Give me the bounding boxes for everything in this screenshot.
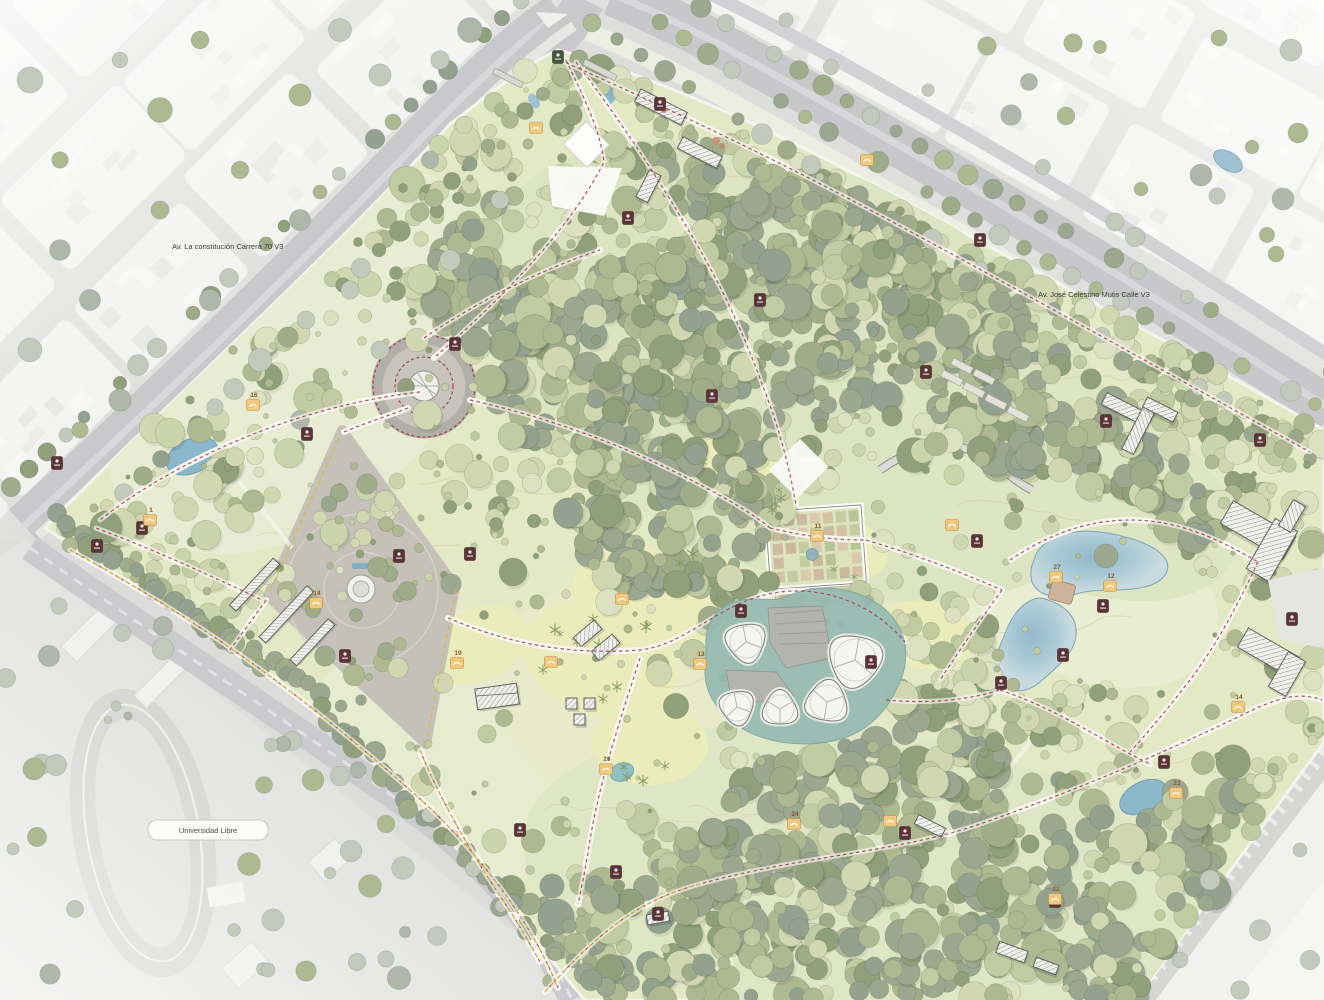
svg-text:21: 21 [1052, 886, 1060, 893]
svg-text:Av. José Celestino Mutis Calle: Av. José Celestino Mutis Calle V3 [1038, 290, 1150, 299]
svg-text:16: 16 [250, 392, 258, 399]
svg-text:27: 27 [1053, 564, 1061, 571]
svg-text:14: 14 [313, 590, 321, 597]
svg-text:Av. La constitución Carrera 70: Av. La constitución Carrera 70 V3 [172, 242, 283, 251]
svg-text:19: 19 [454, 650, 462, 657]
svg-text:12: 12 [1107, 573, 1115, 580]
svg-text:11: 11 [815, 523, 822, 530]
svg-text:Universidad Libre: Universidad Libre [179, 826, 237, 835]
svg-text:24: 24 [791, 811, 799, 818]
svg-text:14: 14 [1235, 694, 1243, 701]
svg-text:1: 1 [149, 507, 153, 514]
svg-text:20: 20 [603, 756, 611, 763]
svg-text:23: 23 [1173, 780, 1181, 787]
svg-text:13: 13 [697, 651, 705, 658]
